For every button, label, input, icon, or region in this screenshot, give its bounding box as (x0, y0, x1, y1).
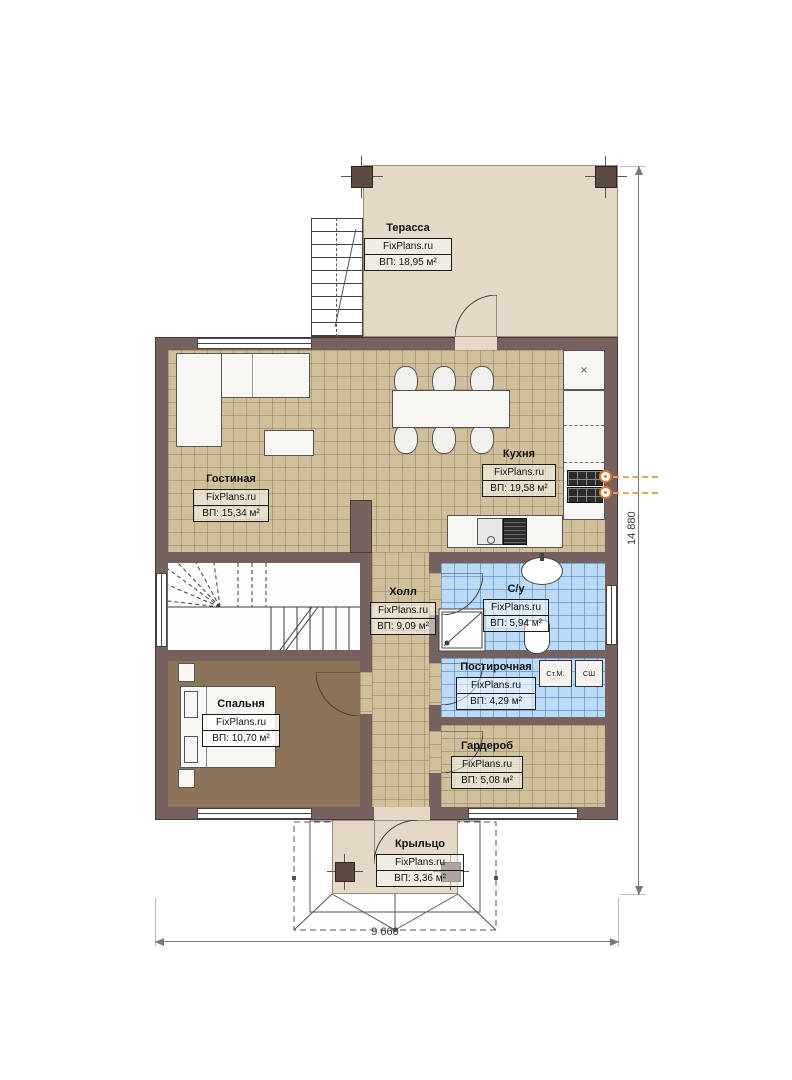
dimension-arrow-down (635, 886, 643, 895)
room-label-box: FixPlans.ru ВП: 5,08 м² (451, 756, 523, 789)
watermark: FixPlans.ru (452, 757, 522, 772)
room-area: ВП: 4,29 м² (457, 693, 535, 709)
room-name: Крыльцо (376, 838, 464, 852)
room-label-laundry: Постирочная FixPlans.ru ВП: 4,29 м² (456, 661, 536, 710)
room-label-box: FixPlans.ru ВП: 4,29 м² (456, 677, 536, 710)
sofa-cushion-line (252, 354, 253, 397)
gas-stove-top (567, 470, 603, 486)
watermark: FixPlans.ru (194, 490, 268, 505)
room-name: Постирочная (456, 661, 536, 675)
room-label-hall: Холл FixPlans.ru ВП: 9,09 м² (370, 586, 436, 635)
bathroom-door-swing (441, 573, 483, 615)
washbasin-tap (540, 553, 544, 561)
room-area: ВП: 18,95 м² (365, 254, 451, 270)
room-area: ВП: 9,09 м² (371, 618, 435, 634)
terrace-column-left (351, 166, 373, 188)
room-area: ВП: 3,36 м² (377, 870, 463, 886)
porch-column-left (335, 862, 355, 882)
watermark: FixPlans.ru (483, 465, 555, 480)
watermark: FixPlans.ru (457, 678, 535, 693)
wall-stub-living (350, 500, 372, 553)
sofa-chaise (176, 353, 222, 447)
dining-table (392, 390, 510, 428)
gas-vent-dot (604, 475, 607, 478)
room-label-wardrobe: Гардероб FixPlans.ru ВП: 5,08 м² (451, 740, 523, 789)
bedroom-door-threshold (360, 672, 372, 714)
window-bedroom-bottom (197, 808, 312, 819)
porch-door-opening (374, 807, 430, 820)
room-name: Холл (370, 586, 436, 600)
watermark: FixPlans.ru (365, 239, 451, 254)
room-name: Кухня (482, 448, 556, 462)
dryer-label: СШ (583, 669, 595, 678)
room-name: Гостиная (193, 473, 269, 487)
dimension-arrow-left (155, 938, 164, 946)
room-label-bathroom: С/у FixPlans.ru ВП: 5,94 м² (483, 583, 549, 632)
room-label-kitchen: Кухня FixPlans.ru ВП: 19,58 м² (482, 448, 556, 497)
room-name: Спальня (202, 698, 280, 712)
gas-line (613, 476, 658, 478)
corner-unit-symbol: × (580, 363, 587, 377)
window-wardrobe-bottom (468, 808, 578, 819)
room-label-box: FixPlans.ru ВП: 15,34 м² (193, 489, 269, 522)
terrace-door-swing (455, 295, 497, 337)
room-label-box: FixPlans.ru ВП: 3,36 м² (376, 854, 464, 887)
gas-stove-bottom (567, 487, 603, 503)
stairs-svg (168, 563, 360, 650)
room-area: ВП: 15,34 м² (194, 505, 268, 521)
wall-cabinet-dash (564, 425, 604, 426)
gas-vent-dot (604, 491, 607, 494)
coffee-table (264, 430, 314, 456)
dining-chair (394, 424, 418, 454)
washing-machine: Ст.М. (539, 660, 572, 687)
room-label-bedroom: Спальня FixPlans.ru ВП: 10,70 м² (202, 698, 280, 747)
room-area: ВП: 5,08 м² (452, 772, 522, 788)
wall-cabinet-dash (564, 462, 604, 463)
dimension-arrow-up (635, 166, 643, 175)
room-label-terrace: Терасса FixPlans.ru ВП: 18,95 м² (364, 222, 452, 271)
pillow (184, 736, 198, 763)
room-label-box: FixPlans.ru ВП: 9,09 м² (370, 602, 436, 635)
window-bathroom-right (606, 585, 617, 645)
room-area: ВП: 10,70 м² (203, 730, 279, 746)
room-area: ВП: 19,58 м² (483, 480, 555, 496)
nightstand-top (178, 663, 195, 682)
window-stairs-left (156, 573, 167, 647)
kitchen-corner-unit: × (563, 350, 605, 390)
gas-line (613, 492, 658, 494)
pillow (184, 691, 198, 718)
kitchen-appliance (503, 518, 527, 545)
watermark: FixPlans.ru (371, 603, 435, 618)
dryer-cabinet: СШ (575, 660, 603, 687)
room-label-living: Гостиная FixPlans.ru ВП: 15,34 м² (193, 473, 269, 522)
washbasin (521, 557, 563, 585)
watermark: FixPlans.ru (484, 600, 548, 615)
room-label-box: FixPlans.ru ВП: 5,94 м² (483, 599, 549, 632)
dimension-line-horizontal (155, 941, 619, 942)
terrace-column-right (595, 166, 617, 188)
floor-plan-canvas: × Ст.М. СШ (0, 0, 792, 1080)
room-label-box: FixPlans.ru ВП: 19,58 м² (482, 464, 556, 497)
dimension-height-label: 14 880 (626, 497, 642, 559)
laundry-door-threshold (429, 663, 441, 705)
dimension-arrow-right (610, 938, 619, 946)
window-living-top (197, 338, 312, 349)
room-name: Гардероб (451, 740, 523, 754)
room-name: Терасса (364, 222, 452, 236)
room-area: ВП: 5,94 м² (484, 615, 548, 631)
bedroom-door-swing (316, 672, 360, 716)
watermark: FixPlans.ru (377, 855, 463, 870)
room-label-box: FixPlans.ru ВП: 18,95 м² (364, 238, 452, 271)
washing-machine-label: Ст.М. (546, 669, 564, 678)
terrace-door-opening (455, 337, 497, 350)
room-label-box: FixPlans.ru ВП: 10,70 м² (202, 714, 280, 747)
watermark: FixPlans.ru (203, 715, 279, 730)
room-label-porch: Крыльцо FixPlans.ru ВП: 3,36 м² (376, 838, 464, 887)
wardrobe-door-threshold (429, 731, 441, 773)
dining-chair (432, 424, 456, 454)
sink-drain (487, 536, 495, 544)
room-name: С/у (483, 583, 549, 597)
nightstand-bottom (178, 769, 195, 788)
